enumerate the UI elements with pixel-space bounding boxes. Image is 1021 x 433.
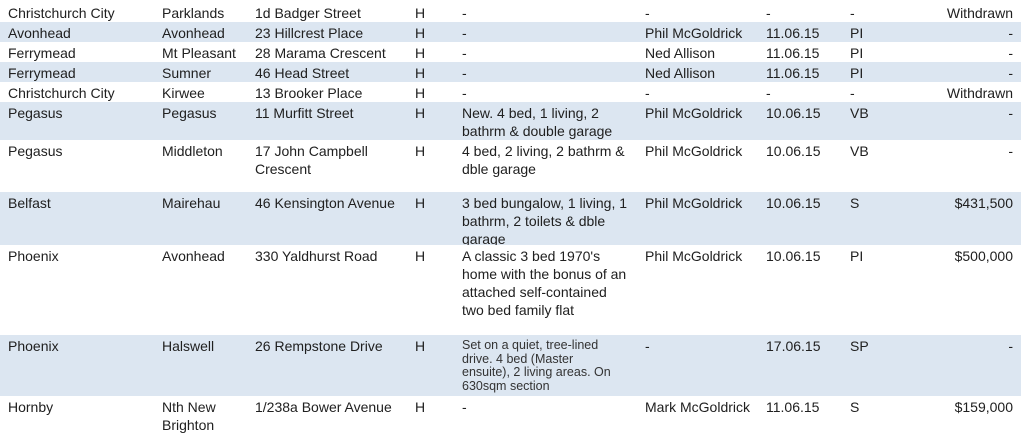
- cell-date: -: [759, 82, 843, 102]
- cell-suburb: Mt Pleasant: [155, 42, 248, 62]
- cell-suburb: Avonhead: [155, 22, 248, 42]
- cell-description: -: [455, 22, 638, 42]
- cell-result: -: [905, 42, 1021, 62]
- cell-description: A classic 3 bed 1970's home with the bon…: [455, 245, 638, 335]
- cell-agent: Mark McGoldrick: [638, 396, 759, 433]
- cell-suburb: Avonhead: [155, 245, 248, 335]
- cell-result: Withdrawn: [905, 82, 1021, 102]
- cell-agent: -: [638, 82, 759, 102]
- cell-date: 10.06.15: [759, 140, 843, 192]
- cell-date: 10.06.15: [759, 102, 843, 140]
- cell-suburb: Halswell: [155, 335, 248, 396]
- cell-address: 1d Badger Street: [248, 2, 408, 22]
- cell-property-type: H: [408, 62, 455, 82]
- cell-property-type: H: [408, 245, 455, 335]
- cell-address: 1/238a Bower Avenue: [248, 396, 408, 433]
- cell-property-type: H: [408, 42, 455, 62]
- cell-agent: Phil McGoldrick: [638, 102, 759, 140]
- table-row: PegasusMiddleton17 John Campbell Crescen…: [0, 140, 1021, 192]
- cell-date: 17.06.15: [759, 335, 843, 396]
- cell-result: $159,000: [905, 396, 1021, 433]
- cell-agent: Phil McGoldrick: [638, 245, 759, 335]
- cell-address: 46 Head Street: [248, 62, 408, 82]
- table-row: PhoenixAvonhead330 Yaldhurst RoadHA clas…: [0, 245, 1021, 335]
- cell-status-code: PI: [843, 22, 905, 42]
- cell-suburb: Kirwee: [155, 82, 248, 102]
- cell-property-type: H: [408, 2, 455, 22]
- table-row: PhoenixHalswell26 Rempstone DriveHSet on…: [0, 335, 1021, 396]
- cell-property-type: H: [408, 140, 455, 192]
- cell-date: 10.06.15: [759, 245, 843, 335]
- cell-property-type: H: [408, 396, 455, 433]
- cell-date: 11.06.15: [759, 62, 843, 82]
- cell-status-code: PI: [843, 62, 905, 82]
- listings-table: Christchurch CityParklands1d Badger Stre…: [0, 0, 1021, 433]
- cell-agent: Ned Allison: [638, 62, 759, 82]
- cell-suburb: Sumner: [155, 62, 248, 82]
- cell-result: -: [905, 140, 1021, 192]
- cell-description: New. 4 bed, 1 living, 2 bathrm & double …: [455, 102, 638, 140]
- cell-status-code: SP: [843, 335, 905, 396]
- cell-area: Ferrymead: [0, 62, 155, 82]
- cell-area: Pegasus: [0, 140, 155, 192]
- cell-area: Avonhead: [0, 22, 155, 42]
- cell-property-type: H: [408, 102, 455, 140]
- cell-status-code: -: [843, 82, 905, 102]
- cell-area: Phoenix: [0, 245, 155, 335]
- cell-agent: Phil McGoldrick: [638, 192, 759, 245]
- cell-description: -: [455, 82, 638, 102]
- table-row: PegasusPegasus11 Murfitt StreetHNew. 4 b…: [0, 102, 1021, 140]
- cell-area: Phoenix: [0, 335, 155, 396]
- cell-status-code: PI: [843, 245, 905, 335]
- cell-description: -: [455, 396, 638, 433]
- cell-status-code: -: [843, 2, 905, 22]
- cell-property-type: H: [408, 335, 455, 396]
- cell-description: -: [455, 42, 638, 62]
- cell-status-code: S: [843, 396, 905, 433]
- cell-suburb: Mairehau: [155, 192, 248, 245]
- cell-description: 4 bed, 2 living, 2 bathrm & dble garage: [455, 140, 638, 192]
- cell-suburb: Middleton: [155, 140, 248, 192]
- cell-result: Withdrawn: [905, 2, 1021, 22]
- cell-result: -: [905, 102, 1021, 140]
- table-row: FerrymeadMt Pleasant28 Marama CrescentH-…: [0, 42, 1021, 62]
- cell-area: Ferrymead: [0, 42, 155, 62]
- cell-date: -: [759, 2, 843, 22]
- cell-date: 11.06.15: [759, 42, 843, 62]
- cell-address: 46 Kensington Avenue: [248, 192, 408, 245]
- cell-status-code: VB: [843, 102, 905, 140]
- cell-agent: -: [638, 2, 759, 22]
- cell-area: Pegasus: [0, 102, 155, 140]
- cell-result: $431,500: [905, 192, 1021, 245]
- cell-agent: Phil McGoldrick: [638, 140, 759, 192]
- cell-area: Christchurch City: [0, 2, 155, 22]
- cell-agent: Ned Allison: [638, 42, 759, 62]
- cell-address: 17 John Campbell Crescent: [248, 140, 408, 192]
- cell-address: 13 Brooker Place: [248, 82, 408, 102]
- table-row: HornbyNth New Brighton1/238a Bower Avenu…: [0, 396, 1021, 433]
- table-body: Christchurch CityParklands1d Badger Stre…: [0, 2, 1021, 433]
- cell-property-type: H: [408, 22, 455, 42]
- cell-area: Hornby: [0, 396, 155, 433]
- cell-area: Christchurch City: [0, 82, 155, 102]
- cell-suburb: Nth New Brighton: [155, 396, 248, 433]
- cell-property-type: H: [408, 82, 455, 102]
- cell-status-code: PI: [843, 42, 905, 62]
- table-row: Christchurch CityKirwee13 Brooker PlaceH…: [0, 82, 1021, 102]
- cell-address: 23 Hillcrest Place: [248, 22, 408, 42]
- cell-description: -: [455, 2, 638, 22]
- cell-description: 3 bed bungalow, 1 living, 1 bathrm, 2 to…: [455, 192, 638, 245]
- table-row: FerrymeadSumner46 Head StreetH-Ned Allis…: [0, 62, 1021, 82]
- cell-address: 11 Murfitt Street: [248, 102, 408, 140]
- table-row: AvonheadAvonhead23 Hillcrest PlaceH-Phil…: [0, 22, 1021, 42]
- cell-description: -: [455, 62, 638, 82]
- cell-address: 330 Yaldhurst Road: [248, 245, 408, 335]
- cell-result: $500,000: [905, 245, 1021, 335]
- cell-result: -: [905, 62, 1021, 82]
- cell-address: 28 Marama Crescent: [248, 42, 408, 62]
- cell-date: 11.06.15: [759, 22, 843, 42]
- cell-description: Set on a quiet, tree-lined drive. 4 bed …: [455, 335, 620, 396]
- cell-status-code: VB: [843, 140, 905, 192]
- cell-result: -: [905, 335, 1021, 396]
- cell-result: -: [905, 22, 1021, 42]
- table-row: BelfastMairehau46 Kensington AvenueH3 be…: [0, 192, 1021, 245]
- cell-suburb: Parklands: [155, 2, 248, 22]
- cell-date: 11.06.15: [759, 396, 843, 433]
- cell-agent: -: [638, 335, 759, 396]
- cell-agent: Phil McGoldrick: [638, 22, 759, 42]
- cell-status-code: S: [843, 192, 905, 245]
- cell-suburb: Pegasus: [155, 102, 248, 140]
- cell-property-type: H: [408, 192, 455, 245]
- cell-address: 26 Rempstone Drive: [248, 335, 408, 396]
- table-row: Christchurch CityParklands1d Badger Stre…: [0, 2, 1021, 22]
- cell-date: 10.06.15: [759, 192, 843, 245]
- cell-area: Belfast: [0, 192, 155, 245]
